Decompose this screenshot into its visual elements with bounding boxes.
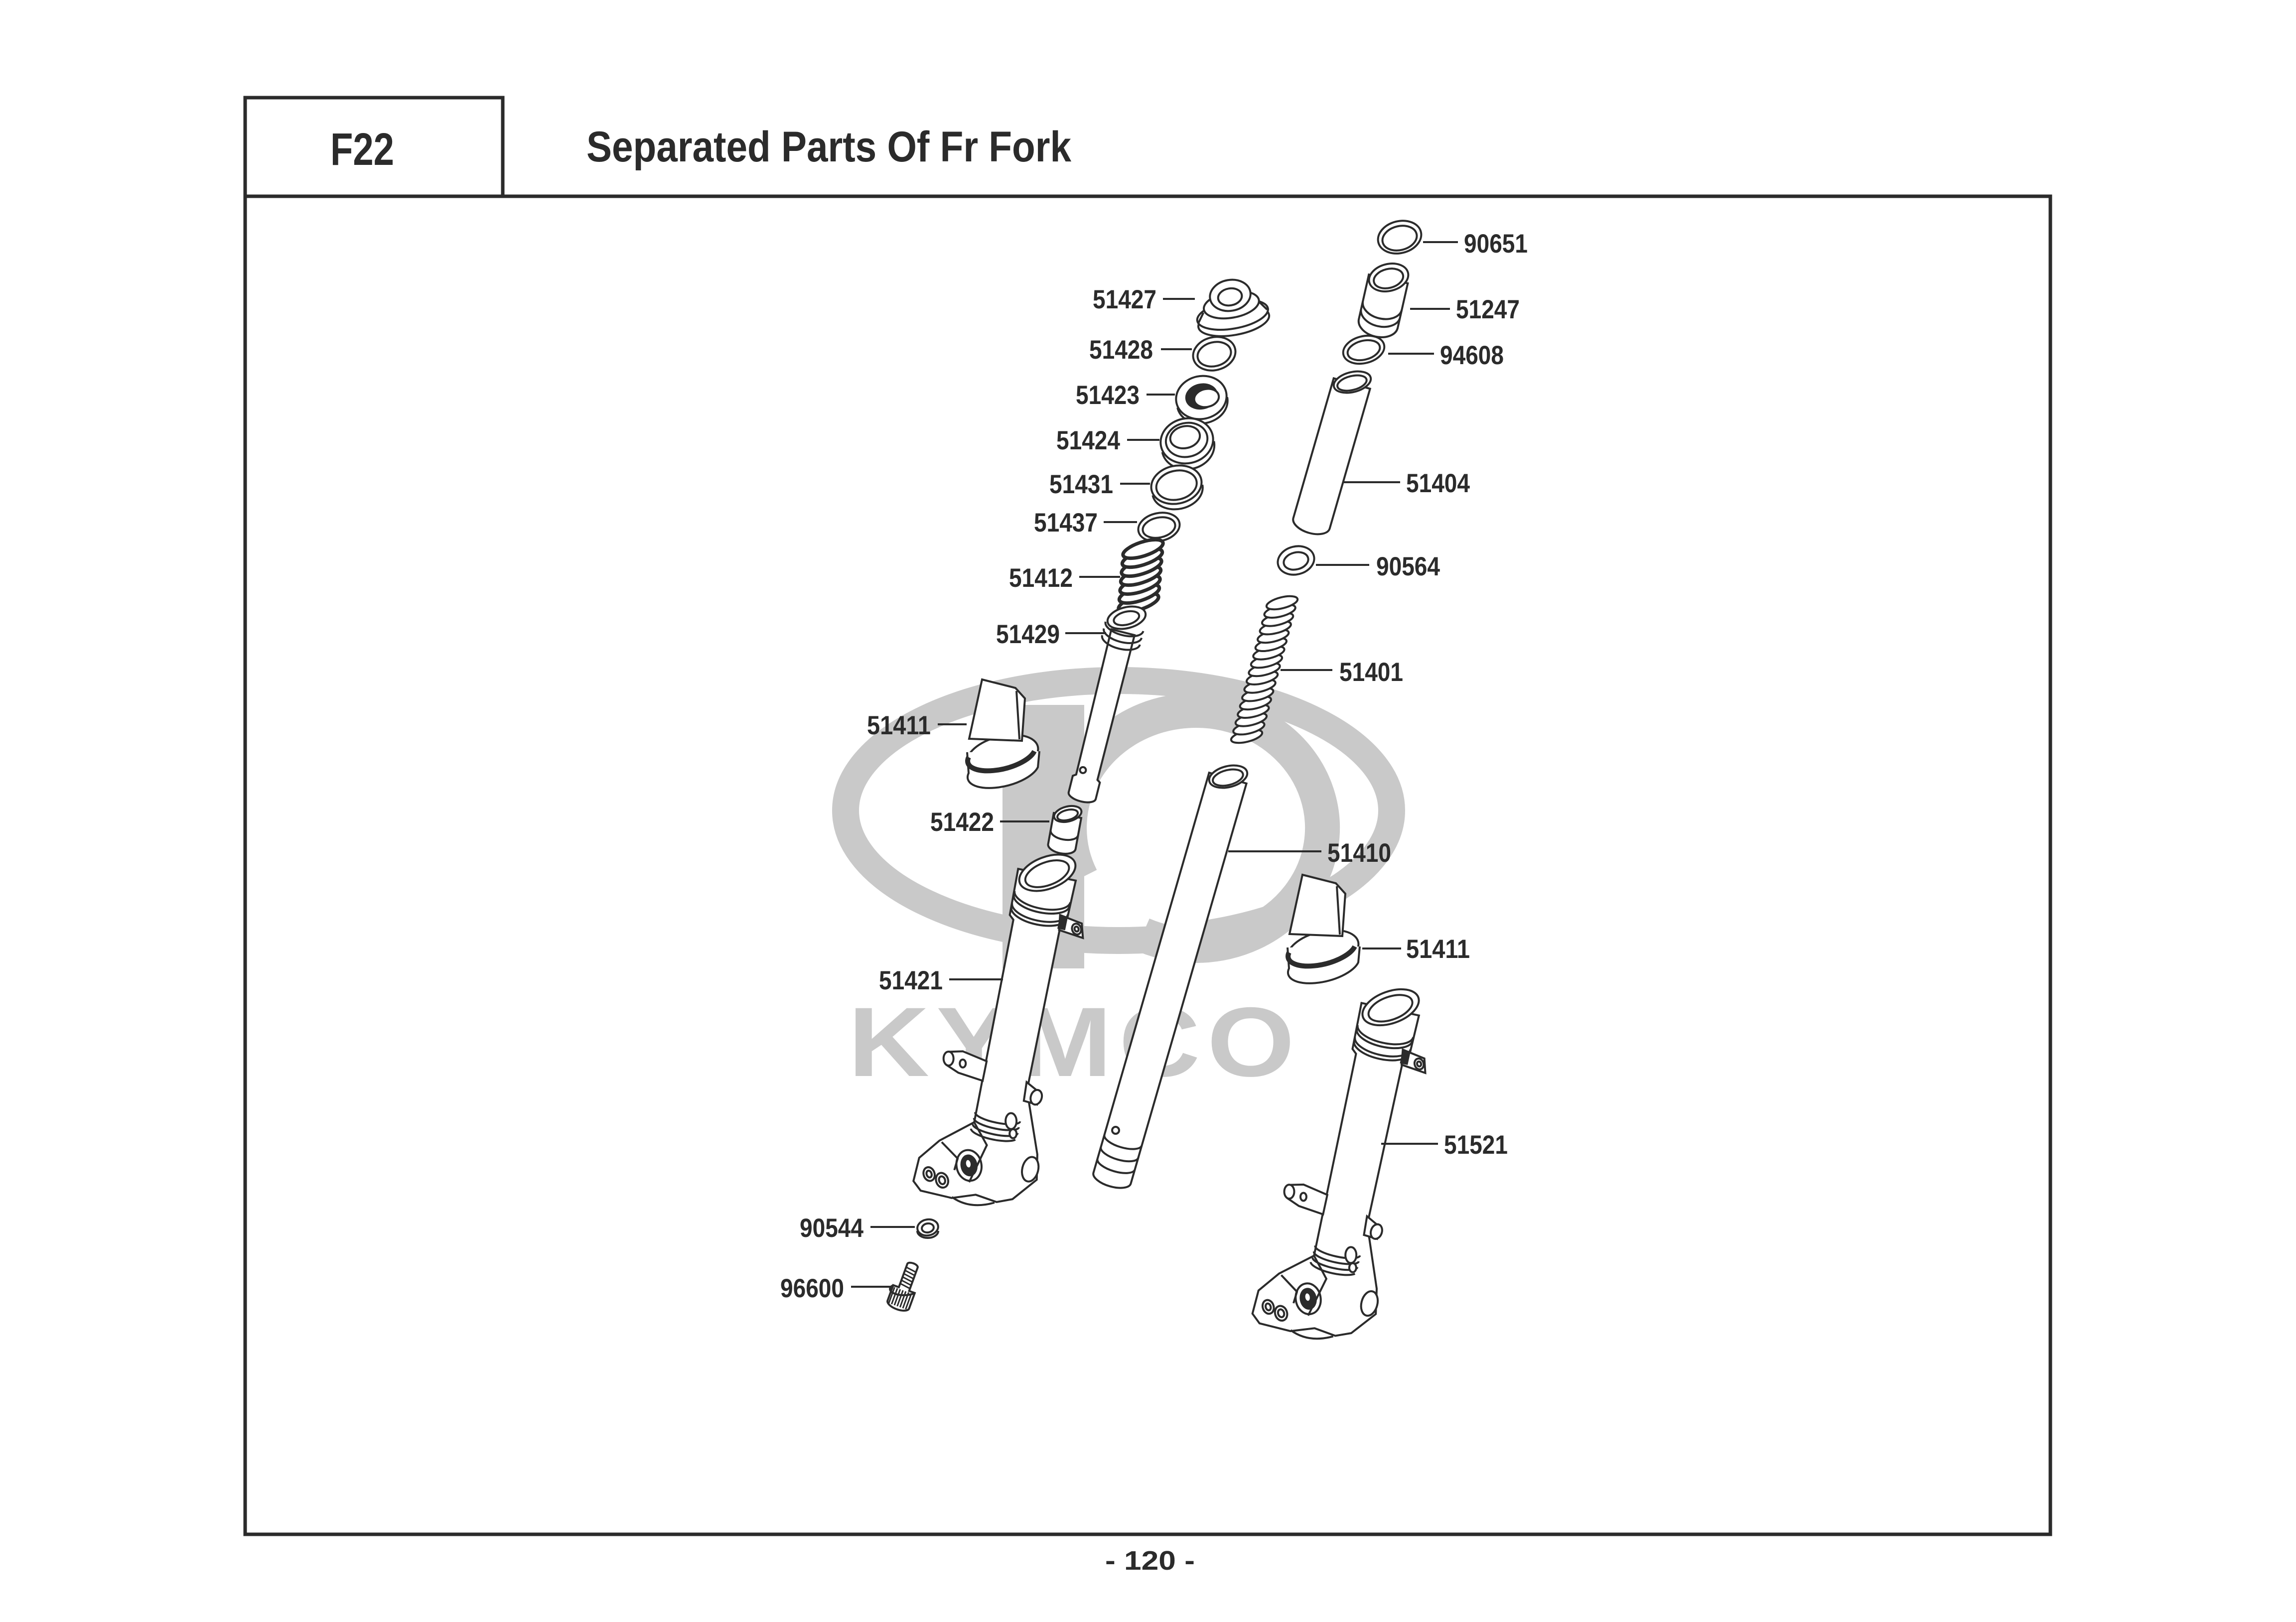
svg-text:90651: 90651 (1464, 229, 1528, 259)
svg-text:51422: 51422 (930, 808, 994, 837)
svg-text:51401: 51401 (1339, 658, 1403, 687)
svg-text:90544: 90544 (800, 1214, 863, 1243)
svg-text:96600: 96600 (780, 1274, 844, 1303)
svg-text:51404: 51404 (1406, 469, 1470, 498)
svg-text:51410: 51410 (1327, 838, 1391, 868)
svg-text:51411: 51411 (867, 711, 931, 740)
svg-text:Separated Parts Of Fr Fork: Separated Parts Of Fr Fork (586, 123, 1071, 171)
svg-text:51437: 51437 (1034, 508, 1098, 538)
svg-text:90564: 90564 (1376, 552, 1440, 581)
svg-text:51421: 51421 (879, 966, 943, 995)
svg-text:51428: 51428 (1089, 335, 1153, 365)
svg-text:51424: 51424 (1056, 426, 1120, 455)
svg-text:- 120 -: - 120 - (1105, 1546, 1195, 1576)
svg-text:51429: 51429 (996, 620, 1060, 649)
svg-text:51411: 51411 (1406, 935, 1470, 964)
svg-text:51427: 51427 (1093, 285, 1156, 314)
svg-text:51423: 51423 (1076, 381, 1140, 410)
svg-text:F22: F22 (330, 124, 394, 175)
svg-text:51521: 51521 (1444, 1130, 1508, 1160)
svg-text:51431: 51431 (1049, 470, 1113, 499)
svg-text:KYMCO: KYMCO (848, 987, 1301, 1097)
svg-text:51247: 51247 (1456, 295, 1520, 324)
svg-text:94608: 94608 (1440, 341, 1504, 370)
svg-text:51412: 51412 (1009, 563, 1073, 593)
